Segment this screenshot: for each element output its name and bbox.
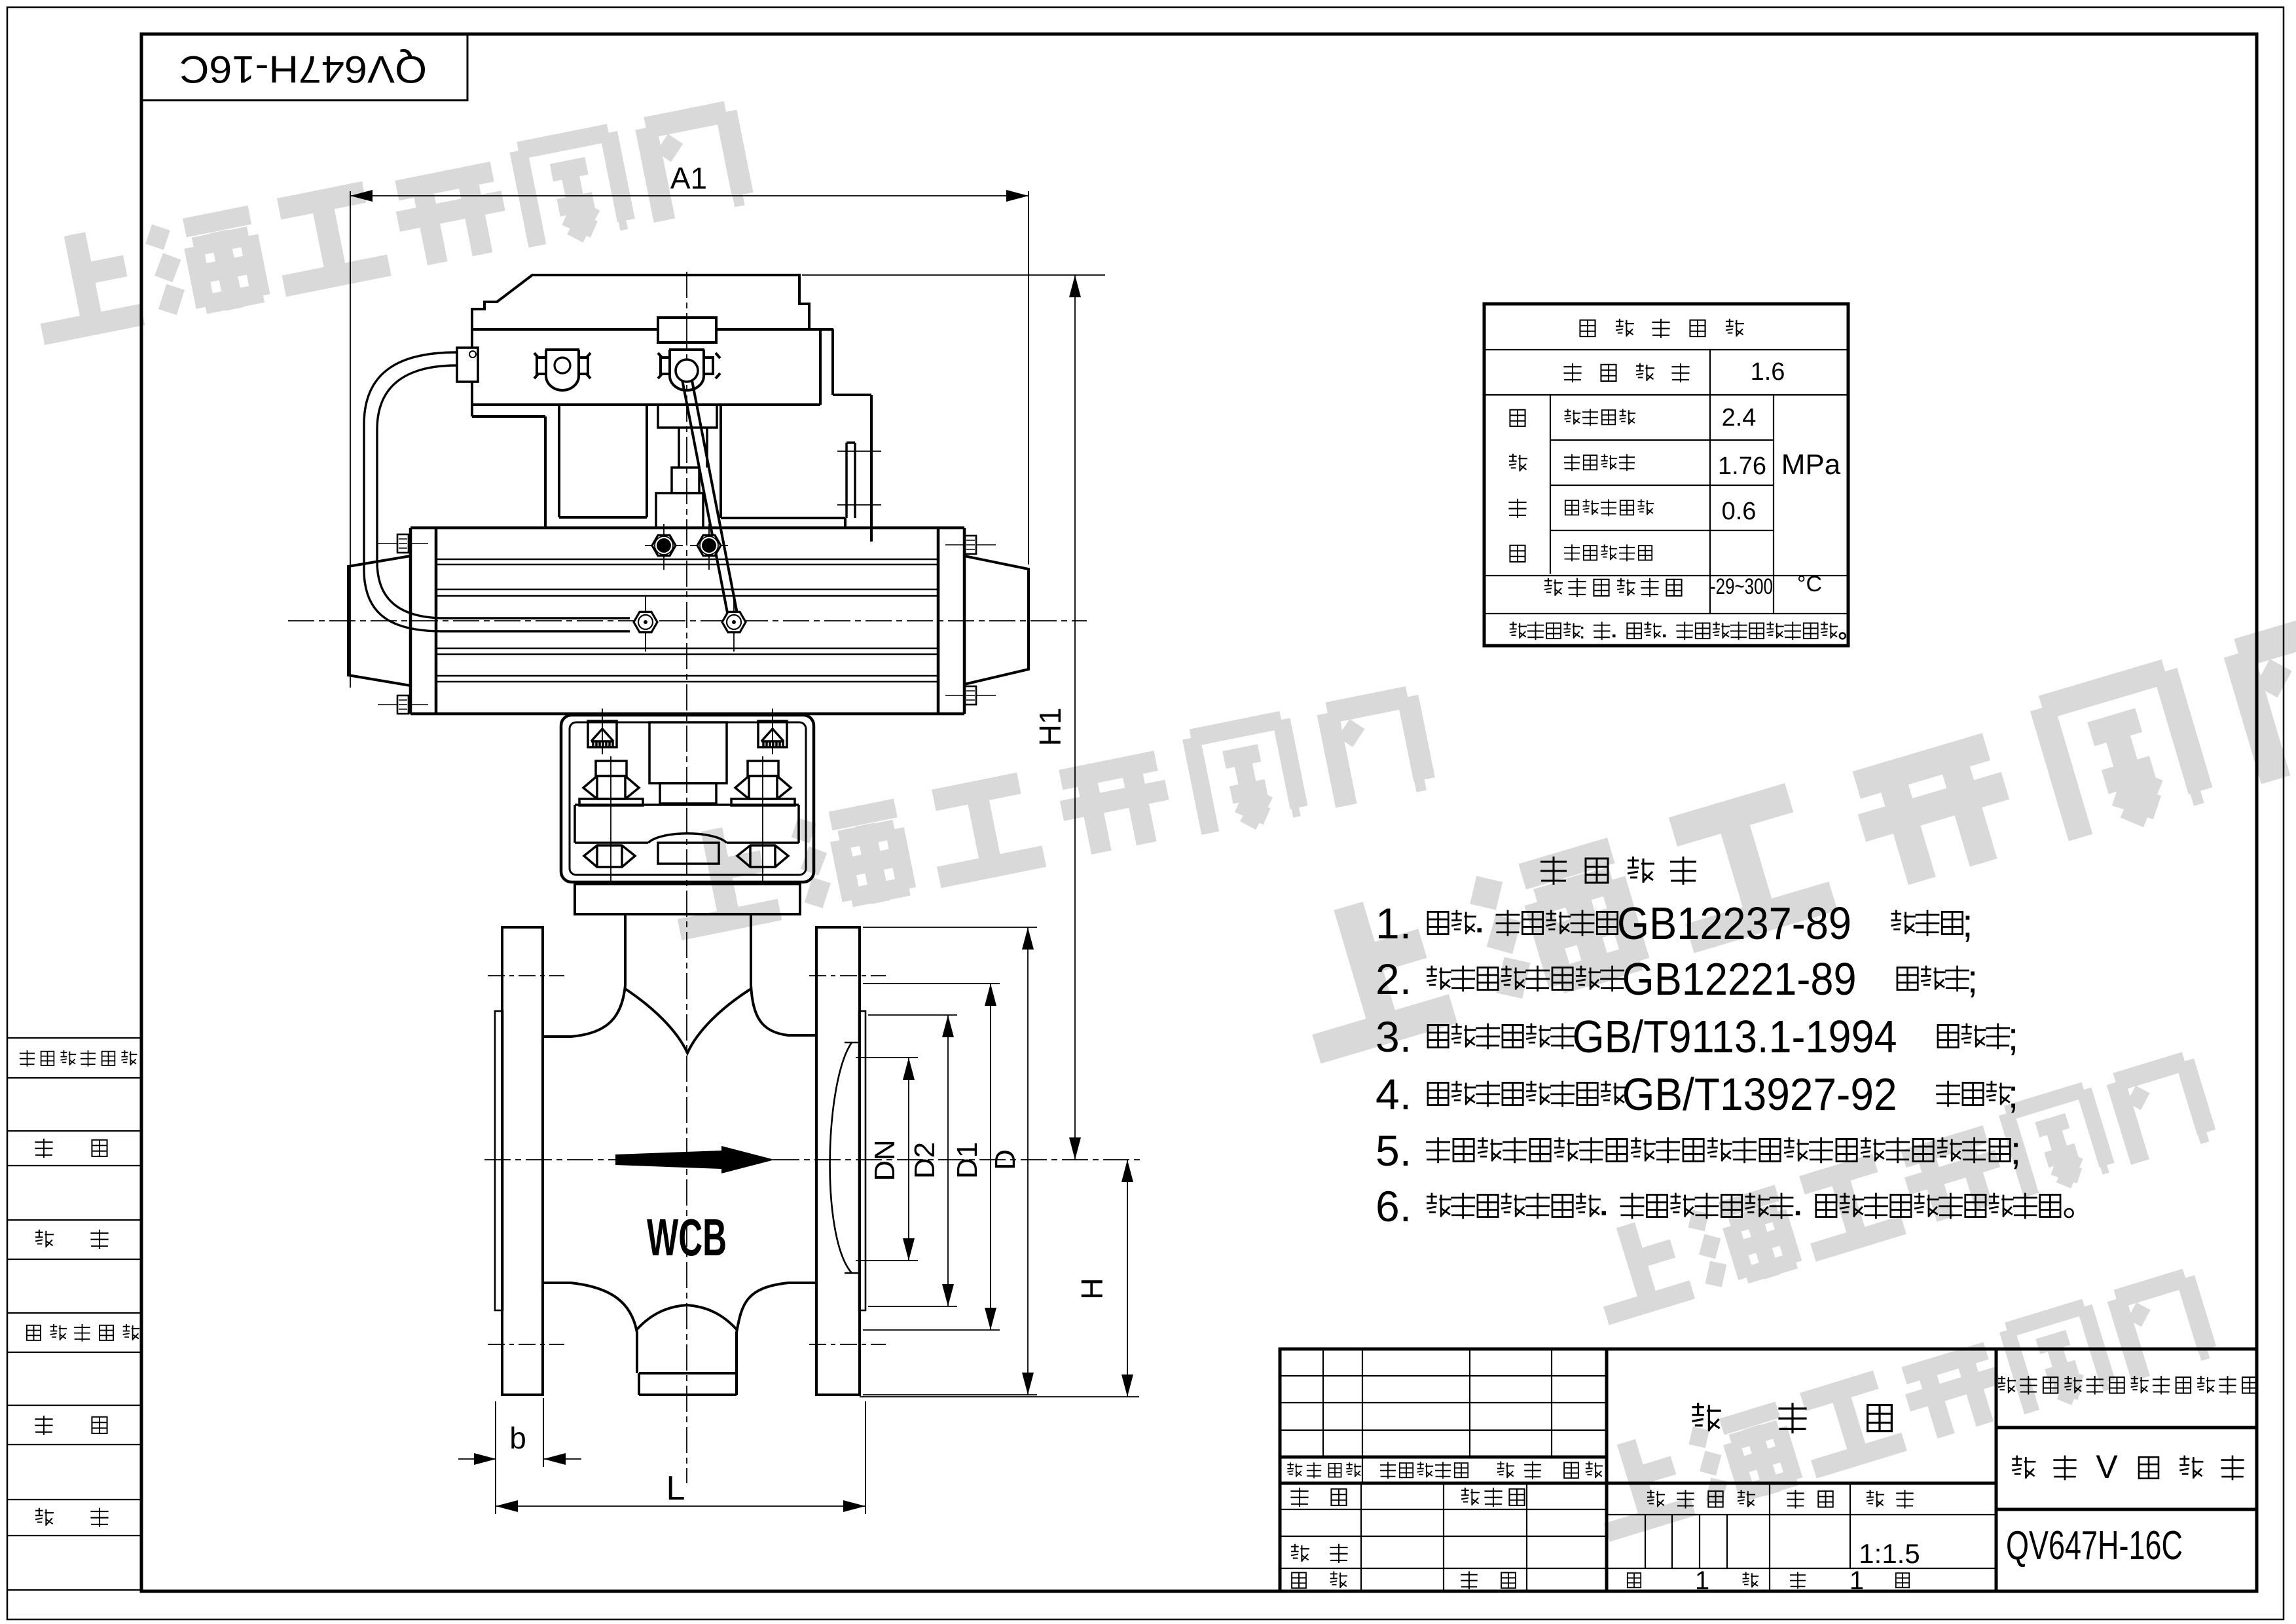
svg-text:5.: 5. — [1376, 1126, 1412, 1175]
svg-text:°C: °C — [1797, 572, 1822, 597]
svg-text:2.4: 2.4 — [1722, 404, 1757, 432]
svg-text:1: 1 — [1850, 1566, 1864, 1595]
svg-text:1.76: 1.76 — [1718, 452, 1766, 480]
svg-text:A1: A1 — [670, 161, 707, 195]
svg-text:H1: H1 — [1033, 708, 1067, 747]
svg-text:D: D — [989, 1149, 1021, 1170]
svg-text:;: ; — [1967, 957, 1978, 1001]
svg-text:H: H — [1075, 1278, 1109, 1299]
svg-text:2.: 2. — [1376, 955, 1412, 1003]
svg-text:;: ; — [1962, 902, 1973, 946]
svg-text:1.6: 1.6 — [1751, 358, 1785, 386]
svg-text:D2: D2 — [909, 1142, 941, 1179]
svg-text:GB12237-89: GB12237-89 — [1617, 898, 1851, 949]
svg-text:-29~300: -29~300 — [1710, 574, 1773, 599]
svg-text:1.: 1. — [1376, 899, 1412, 948]
svg-text:1:1.5: 1:1.5 — [1859, 1538, 1920, 1569]
svg-text::: : — [1579, 619, 1585, 644]
svg-text:QV647H-16C: QV647H-16C — [2006, 1523, 2183, 1568]
svg-text:0.6: 0.6 — [1722, 498, 1757, 525]
svg-text:3.: 3. — [1376, 1012, 1412, 1061]
svg-text:DN: DN — [869, 1139, 901, 1181]
svg-text:;: ; — [2008, 1015, 2019, 1059]
svg-text:b: b — [509, 1421, 526, 1455]
svg-text:1: 1 — [1695, 1566, 1709, 1595]
svg-text:;: ; — [2008, 1073, 2019, 1116]
svg-text:D1: D1 — [951, 1142, 983, 1179]
svg-text:WCB: WCB — [647, 1208, 727, 1266]
svg-text:4.: 4. — [1376, 1070, 1412, 1118]
svg-text:;: ; — [2011, 1129, 2022, 1173]
svg-text:L: L — [666, 1469, 685, 1507]
svg-text:6.: 6. — [1376, 1182, 1412, 1230]
svg-text:V: V — [2096, 1449, 2118, 1485]
svg-text:MPa: MPa — [1781, 449, 1841, 481]
svg-text:QV647H-16C: QV647H-16C — [179, 48, 427, 90]
svg-text:GB/T13927-92: GB/T13927-92 — [1622, 1069, 1897, 1120]
svg-text:GB/T9113.1-1994: GB/T9113.1-1994 — [1573, 1011, 1897, 1062]
svg-text:GB12221-89: GB12221-89 — [1622, 953, 1857, 1005]
